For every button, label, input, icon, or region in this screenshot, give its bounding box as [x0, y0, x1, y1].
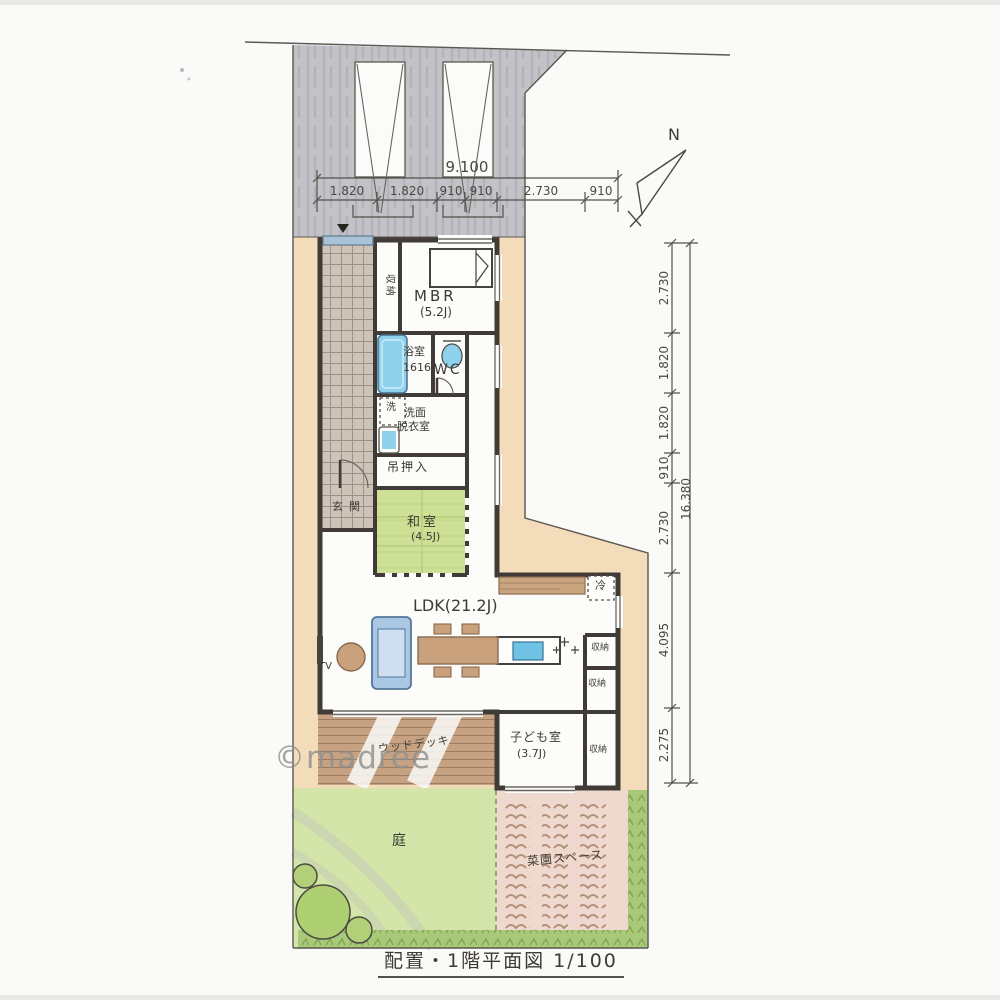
label-mbr: MBR: [414, 288, 457, 305]
dim-top-seg-3: 910: [434, 184, 468, 198]
label-bathroom: 浴室: [403, 346, 425, 359]
label-kids-closet: 収納: [589, 745, 607, 755]
label-mbr-closet: 収納: [383, 266, 395, 306]
label-washitsu: 和室: [407, 516, 439, 531]
dim-right-total: 16.380: [679, 469, 693, 529]
scan-marks: [180, 68, 191, 81]
label-refrigerator: 冷: [595, 580, 606, 593]
dim-right-seg-7: 2.275: [657, 718, 671, 772]
tv-board: [317, 636, 323, 664]
dim-top-seg-5: 2.730: [516, 184, 566, 198]
label-washroom-1: 洗面: [404, 407, 426, 420]
label-washroom-2: 脱衣室: [397, 421, 430, 434]
label-wc: WC: [434, 362, 462, 378]
watermark: ©madree: [274, 741, 431, 777]
dim-top-seg-6: 910: [584, 184, 618, 198]
label-entrance: 玄関: [332, 501, 366, 514]
label-kids-room: 子ども室: [510, 731, 562, 745]
floor-plan-page: 9.100 1.820 1.820 910 910 2.730 910 2.73…: [0, 0, 1000, 1000]
label-storage-2: 収納: [588, 679, 606, 689]
north-label: N: [668, 126, 680, 144]
dim-top-seg-4: 910: [464, 184, 498, 198]
dim-right-seg-5: 2.730: [657, 501, 671, 555]
vegetable-garden-area: [496, 790, 630, 945]
label-storage-1: 収納: [591, 643, 609, 653]
dim-top-total: 9.100: [437, 158, 497, 176]
label-mbr-area: (5.2J): [420, 306, 452, 320]
dim-top-seg-1: 1.820: [322, 184, 372, 198]
label-garden: 庭: [392, 833, 406, 849]
label-kids-room-area: (3.7J): [517, 748, 546, 761]
label-hanging-closet: 吊押入: [387, 461, 429, 475]
dining-table: [418, 637, 498, 664]
drawing-title: 配置・1階平面図 1/100: [378, 951, 624, 978]
dim-right-seg-2: 1.820: [657, 336, 671, 390]
kitchen-counter: [499, 577, 585, 594]
entrance-door: [323, 236, 373, 245]
kitchen-sink: [513, 642, 543, 660]
floor-plan-drawing: [0, 0, 1000, 1000]
bed: [430, 249, 492, 287]
parking-stall-1: [355, 62, 405, 177]
approach-tiles: [322, 243, 375, 530]
north-arrow: [628, 150, 686, 227]
parking-area: [293, 45, 567, 237]
label-ldk: LDK(21.2J): [413, 597, 498, 615]
round-table: [337, 643, 365, 671]
label-laundry: 洗: [386, 402, 396, 414]
label-bathroom-size: 1616: [403, 362, 431, 375]
dim-right-seg-4: 910: [657, 441, 671, 495]
label-tv: TV: [319, 662, 331, 672]
dim-right-seg-6: 4.095: [657, 613, 671, 667]
dim-top-seg-2: 1.820: [382, 184, 432, 198]
label-washitsu-area: (4.5J): [411, 531, 440, 544]
dim-right-seg-1: 2.730: [657, 261, 671, 315]
